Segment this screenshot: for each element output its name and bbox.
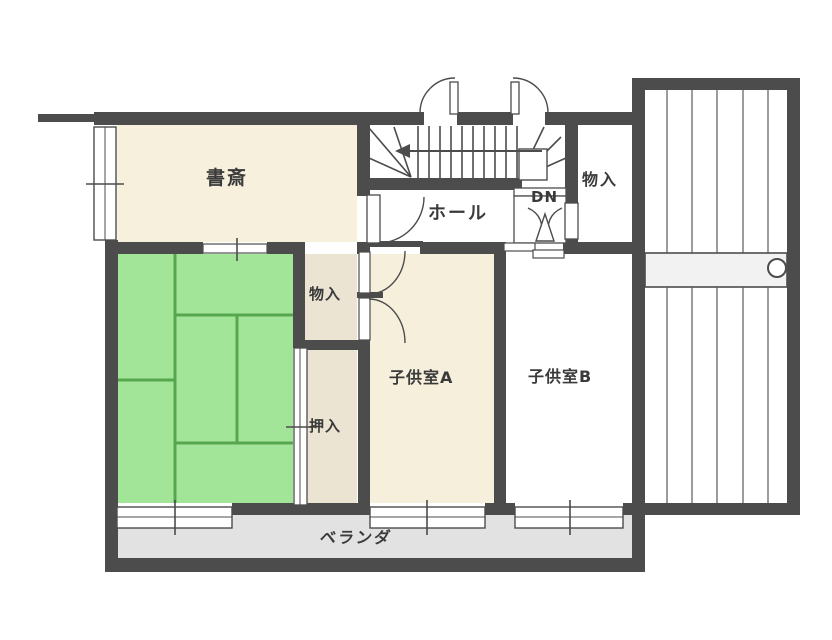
- top-door-leaf-1: [450, 82, 458, 114]
- top-door-leaf-2: [511, 82, 519, 114]
- wall-bottom-seg2: [485, 503, 515, 515]
- roomB-slide-door-1: [504, 243, 535, 251]
- roomB-slide-door-2: [533, 250, 564, 258]
- wall-roomA-roomB: [494, 254, 506, 503]
- wall-tatami-top-left: [105, 242, 203, 254]
- wall-balcony-top: [632, 78, 800, 90]
- room-label-closet: 押入: [309, 419, 341, 434]
- wall-top: [94, 112, 645, 125]
- wall-stair-bottom: [357, 178, 522, 190]
- wall-bottom-outer: [105, 558, 645, 572]
- balcony-band: [645, 253, 787, 287]
- study-door-leaf: [367, 195, 380, 243]
- wall-roomA-left-lower: [358, 340, 370, 503]
- balcony-drain-circle: [768, 259, 786, 277]
- study-door-swing: [378, 197, 424, 243]
- wall-storage-ur-left-upper: [565, 125, 578, 203]
- eave-line: [38, 114, 98, 122]
- tatami-slide-door: [203, 244, 267, 253]
- room-label-storage-upper-right: 物入: [582, 172, 618, 188]
- room-label-veranda: ベランダ: [319, 530, 393, 546]
- storage-ur-door-leaf: [565, 203, 578, 239]
- storage-mid-door-leaf-1: [359, 252, 370, 293]
- wall-right-main: [632, 78, 645, 572]
- wall-left: [105, 240, 118, 572]
- wall-hall-roomB: [563, 242, 632, 254]
- room-label-storage-middle: 物入: [309, 287, 341, 302]
- room-label-child-room-b: 子供室B: [528, 369, 592, 385]
- wall-balcony-bottom: [640, 503, 800, 515]
- wall-hall-roomA: [420, 242, 506, 254]
- stair-landing: [519, 149, 547, 180]
- wall-tatami-top-right: [267, 242, 305, 254]
- wall-tatami-storage: [293, 252, 305, 348]
- wall-balcony-right: [787, 78, 800, 515]
- balcony-floor: [645, 90, 787, 503]
- wall-bottom-seg3: [623, 503, 645, 515]
- room-label-hall: ホール: [428, 205, 488, 223]
- staircase: [369, 126, 566, 180]
- room-label-child-room-a: 子供室A: [389, 370, 453, 386]
- floor-plan: 書斎 ホール DN 物入 物入 押入 子供室A 子供室B ベランダ: [0, 0, 832, 640]
- room-label-study: 書斎: [206, 169, 248, 188]
- floor-plan-graphic: [0, 0, 832, 640]
- stairs-down-label: DN: [531, 190, 558, 205]
- tatami-room: [117, 254, 293, 503]
- storage-mid-door-leaf-2: [359, 298, 370, 340]
